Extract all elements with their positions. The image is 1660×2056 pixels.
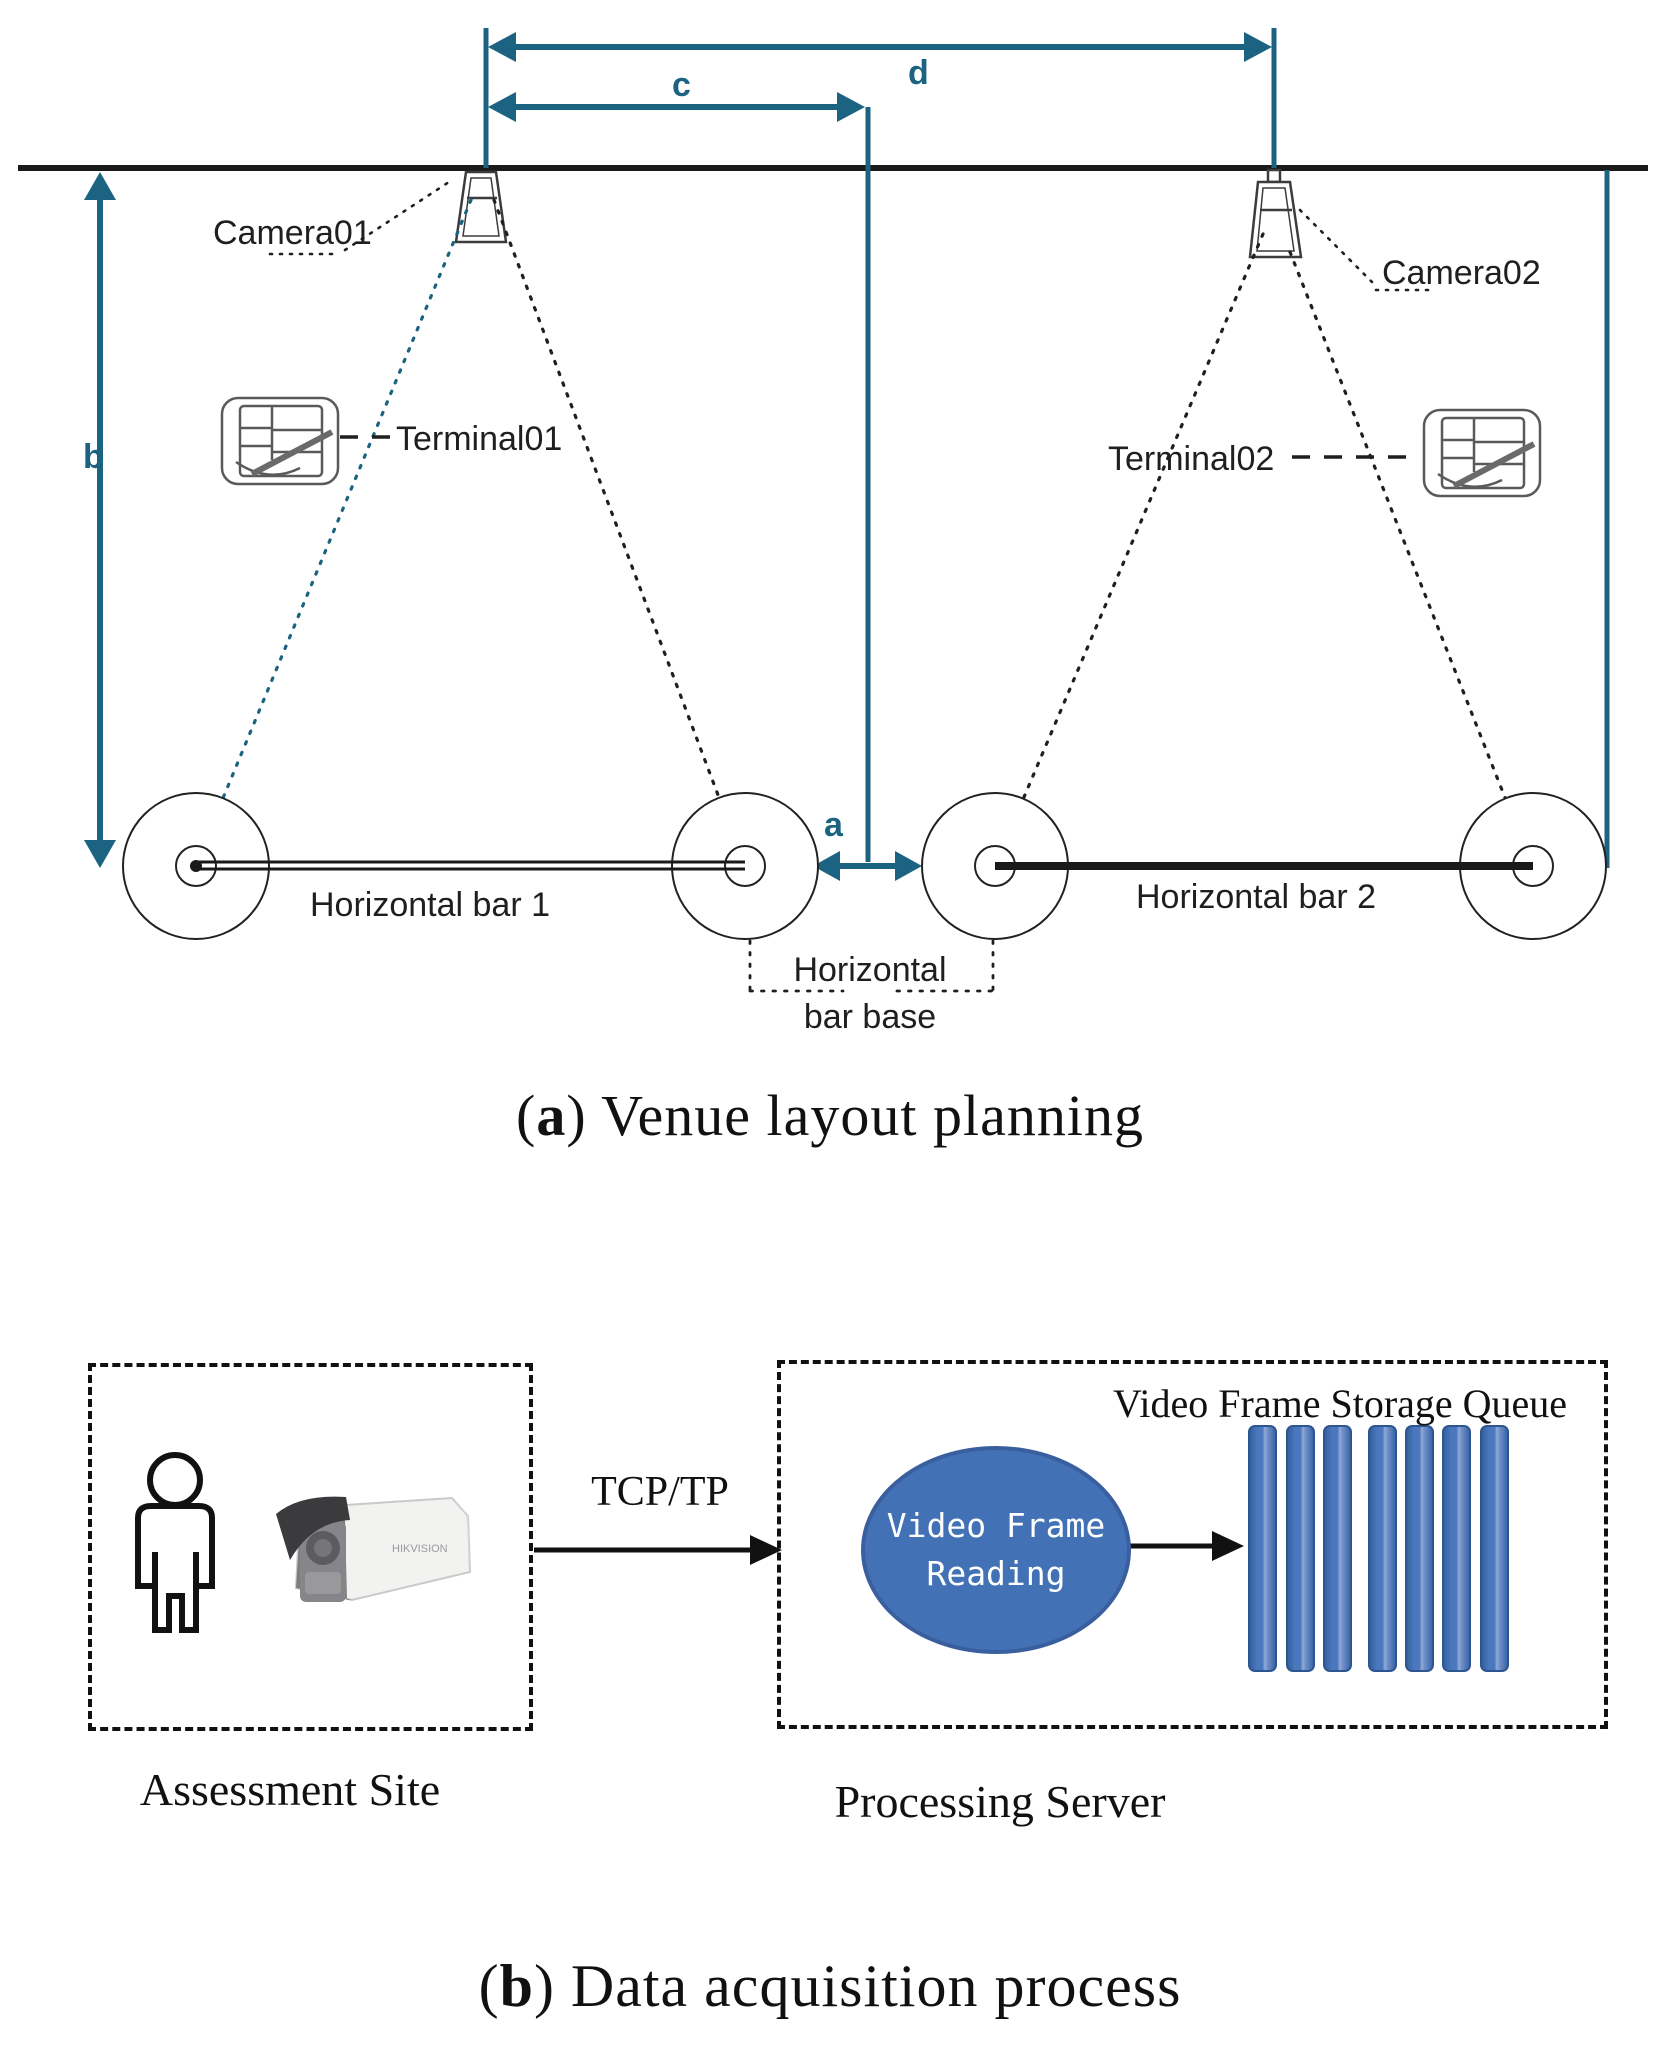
queue-frame-bar: [1368, 1425, 1397, 1672]
tcp-arrow: [534, 1535, 782, 1565]
data-acquisition-diagram: HIKVISION: [0, 0, 1660, 2056]
queue-frame-bar: [1248, 1425, 1277, 1672]
queue-frame-bar: [1442, 1425, 1471, 1672]
person-icon: [138, 1455, 212, 1630]
queue-frame-bar: [1286, 1425, 1315, 1672]
video-frame-reading-ellipse: Video Frame Reading: [861, 1446, 1131, 1654]
queue-label: Video Frame Storage Queue: [1080, 1380, 1600, 1427]
ellipse-text-line2: Reading: [926, 1550, 1065, 1598]
ellipse-text-line1: Video Frame: [887, 1502, 1106, 1550]
queue-arrow: [1127, 1531, 1244, 1561]
caption-b-paren-open: (: [479, 1953, 500, 2019]
figure-canvas: b c d a Camera01 Camera02 Terminal01 Ter…: [0, 0, 1660, 2056]
queue-frame-bar: [1405, 1425, 1434, 1672]
queue-frame-bar: [1480, 1425, 1509, 1672]
tcp-label: TCP/TP: [560, 1468, 760, 1516]
caption-b: (b) Data acquisition process: [0, 1952, 1660, 2021]
caption-b-letter: b: [500, 1953, 534, 2019]
processing-server-label: Processing Server: [790, 1775, 1210, 1828]
assessment-site-label: Assessment Site: [110, 1763, 470, 1816]
queue-frame-bar: [1323, 1425, 1352, 1672]
caption-b-text: ) Data acquisition process: [534, 1953, 1181, 2019]
bullet-camera-icon: HIKVISION: [276, 1497, 470, 1602]
camera-brand-text: HIKVISION: [392, 1543, 448, 1555]
